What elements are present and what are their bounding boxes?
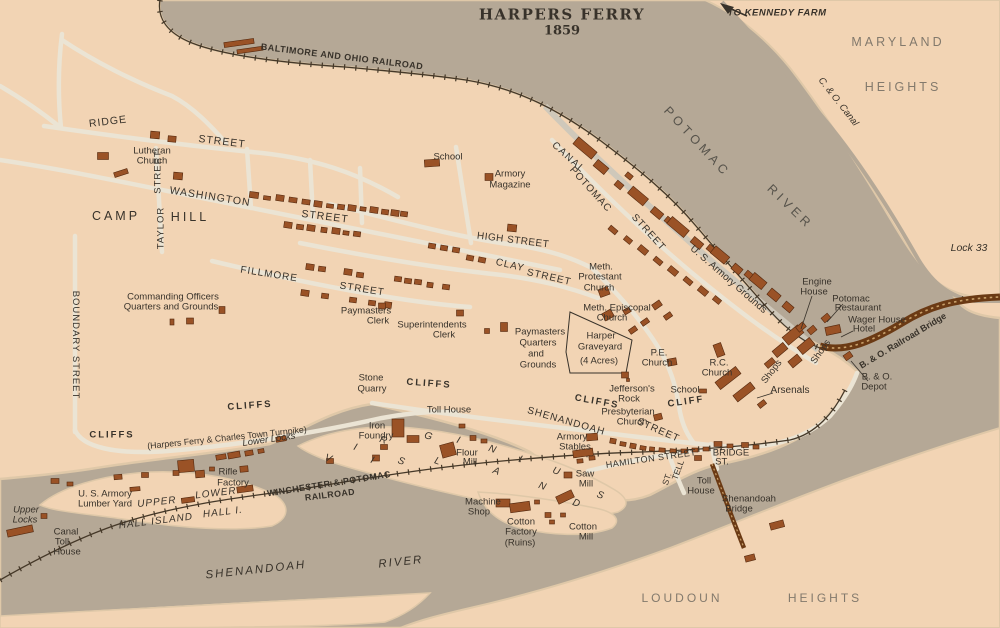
building bbox=[210, 467, 215, 471]
harpers-ferry-map: HARPERS FERRY1859TO KENNEDY FARMMARYLAND… bbox=[0, 0, 1000, 628]
building bbox=[373, 455, 380, 461]
building bbox=[466, 255, 474, 261]
building bbox=[622, 372, 629, 378]
building bbox=[400, 211, 408, 217]
street-cross-1 bbox=[247, 149, 251, 208]
building bbox=[381, 445, 388, 450]
building bbox=[589, 456, 595, 461]
building bbox=[713, 343, 725, 358]
building bbox=[302, 199, 311, 205]
building bbox=[452, 247, 460, 253]
building bbox=[168, 136, 176, 143]
building bbox=[507, 224, 517, 232]
building bbox=[353, 231, 361, 237]
street-cross-3 bbox=[360, 168, 362, 223]
building bbox=[392, 419, 404, 437]
building bbox=[659, 448, 665, 453]
building bbox=[195, 470, 205, 478]
building bbox=[391, 209, 400, 216]
building bbox=[327, 459, 334, 464]
building bbox=[360, 207, 366, 212]
building bbox=[681, 449, 687, 453]
building bbox=[258, 449, 265, 454]
building bbox=[240, 466, 248, 473]
building bbox=[337, 204, 345, 210]
building bbox=[561, 513, 566, 517]
building bbox=[249, 191, 259, 198]
building bbox=[667, 265, 679, 276]
building bbox=[653, 413, 662, 421]
building bbox=[414, 279, 422, 285]
building bbox=[41, 514, 47, 519]
building bbox=[301, 289, 310, 296]
building bbox=[307, 224, 316, 231]
building bbox=[742, 443, 749, 448]
building bbox=[733, 382, 755, 402]
building bbox=[314, 200, 323, 207]
building bbox=[670, 449, 676, 454]
leader-line bbox=[757, 393, 773, 398]
building bbox=[407, 436, 419, 443]
building bbox=[627, 186, 648, 206]
building bbox=[332, 227, 341, 234]
building bbox=[667, 358, 677, 366]
building bbox=[586, 433, 598, 441]
building bbox=[485, 174, 493, 181]
building bbox=[501, 323, 508, 332]
building bbox=[620, 442, 627, 447]
building bbox=[424, 159, 439, 167]
building bbox=[150, 131, 160, 139]
building bbox=[715, 366, 741, 389]
building bbox=[788, 354, 802, 368]
map-canvas bbox=[0, 0, 1000, 628]
building bbox=[573, 137, 597, 159]
building bbox=[170, 319, 174, 325]
building bbox=[535, 500, 540, 504]
street-high bbox=[330, 204, 592, 268]
street-topleft-2 bbox=[0, 86, 61, 128]
building bbox=[640, 446, 647, 451]
building bbox=[628, 326, 637, 335]
building bbox=[602, 309, 615, 321]
building bbox=[440, 245, 448, 251]
building bbox=[757, 400, 766, 409]
building bbox=[637, 244, 649, 255]
building bbox=[114, 474, 122, 480]
building bbox=[485, 329, 490, 334]
building bbox=[714, 442, 722, 447]
building bbox=[344, 268, 353, 275]
building bbox=[318, 266, 326, 272]
harper-graveyard-outline bbox=[566, 312, 632, 373]
building bbox=[394, 276, 402, 282]
building bbox=[428, 243, 436, 249]
building bbox=[653, 256, 663, 266]
building bbox=[753, 445, 759, 449]
building bbox=[67, 482, 73, 486]
building bbox=[627, 379, 630, 382]
building bbox=[289, 197, 298, 203]
street-taylor bbox=[156, 148, 162, 252]
building bbox=[442, 284, 450, 290]
building bbox=[379, 303, 386, 309]
building bbox=[98, 153, 109, 160]
building bbox=[577, 459, 583, 464]
building bbox=[370, 206, 379, 213]
building bbox=[51, 479, 59, 484]
building bbox=[623, 236, 632, 245]
building bbox=[404, 278, 412, 284]
building bbox=[496, 499, 510, 507]
building bbox=[219, 307, 225, 314]
building bbox=[457, 310, 464, 316]
building bbox=[727, 444, 733, 448]
building bbox=[343, 231, 349, 236]
building bbox=[692, 448, 698, 452]
building bbox=[321, 293, 329, 299]
building bbox=[550, 520, 555, 524]
street-school bbox=[456, 147, 471, 243]
building bbox=[187, 318, 194, 324]
building bbox=[356, 272, 364, 278]
building bbox=[326, 204, 333, 209]
building bbox=[296, 224, 304, 230]
building bbox=[381, 209, 389, 215]
building bbox=[683, 276, 693, 286]
building bbox=[663, 312, 672, 321]
building bbox=[321, 227, 328, 233]
building bbox=[178, 459, 195, 472]
building bbox=[564, 472, 572, 478]
building bbox=[764, 357, 776, 368]
building bbox=[630, 443, 637, 449]
building bbox=[700, 389, 707, 393]
building bbox=[608, 225, 618, 235]
street-washington bbox=[0, 160, 560, 270]
building bbox=[427, 282, 434, 288]
building bbox=[306, 263, 315, 270]
building bbox=[703, 447, 709, 451]
building bbox=[349, 297, 357, 303]
street-topleft-1 bbox=[59, 34, 62, 128]
building bbox=[284, 221, 293, 228]
building bbox=[114, 168, 129, 177]
building bbox=[130, 487, 140, 492]
building bbox=[695, 456, 702, 461]
building bbox=[459, 424, 465, 428]
building bbox=[142, 473, 149, 478]
street-cross-2 bbox=[310, 160, 313, 217]
building bbox=[478, 257, 486, 263]
building bbox=[649, 447, 654, 451]
building bbox=[470, 436, 476, 441]
building bbox=[173, 172, 183, 180]
building bbox=[276, 194, 285, 201]
building bbox=[593, 159, 609, 174]
building bbox=[348, 204, 357, 211]
building bbox=[625, 172, 634, 180]
building bbox=[610, 438, 617, 444]
building bbox=[652, 300, 663, 310]
street-topleft-3 bbox=[62, 40, 226, 143]
building bbox=[173, 471, 179, 476]
building bbox=[263, 196, 270, 201]
building bbox=[545, 513, 551, 518]
building bbox=[245, 450, 254, 456]
building bbox=[368, 300, 376, 306]
building bbox=[598, 287, 610, 298]
building bbox=[481, 439, 487, 443]
